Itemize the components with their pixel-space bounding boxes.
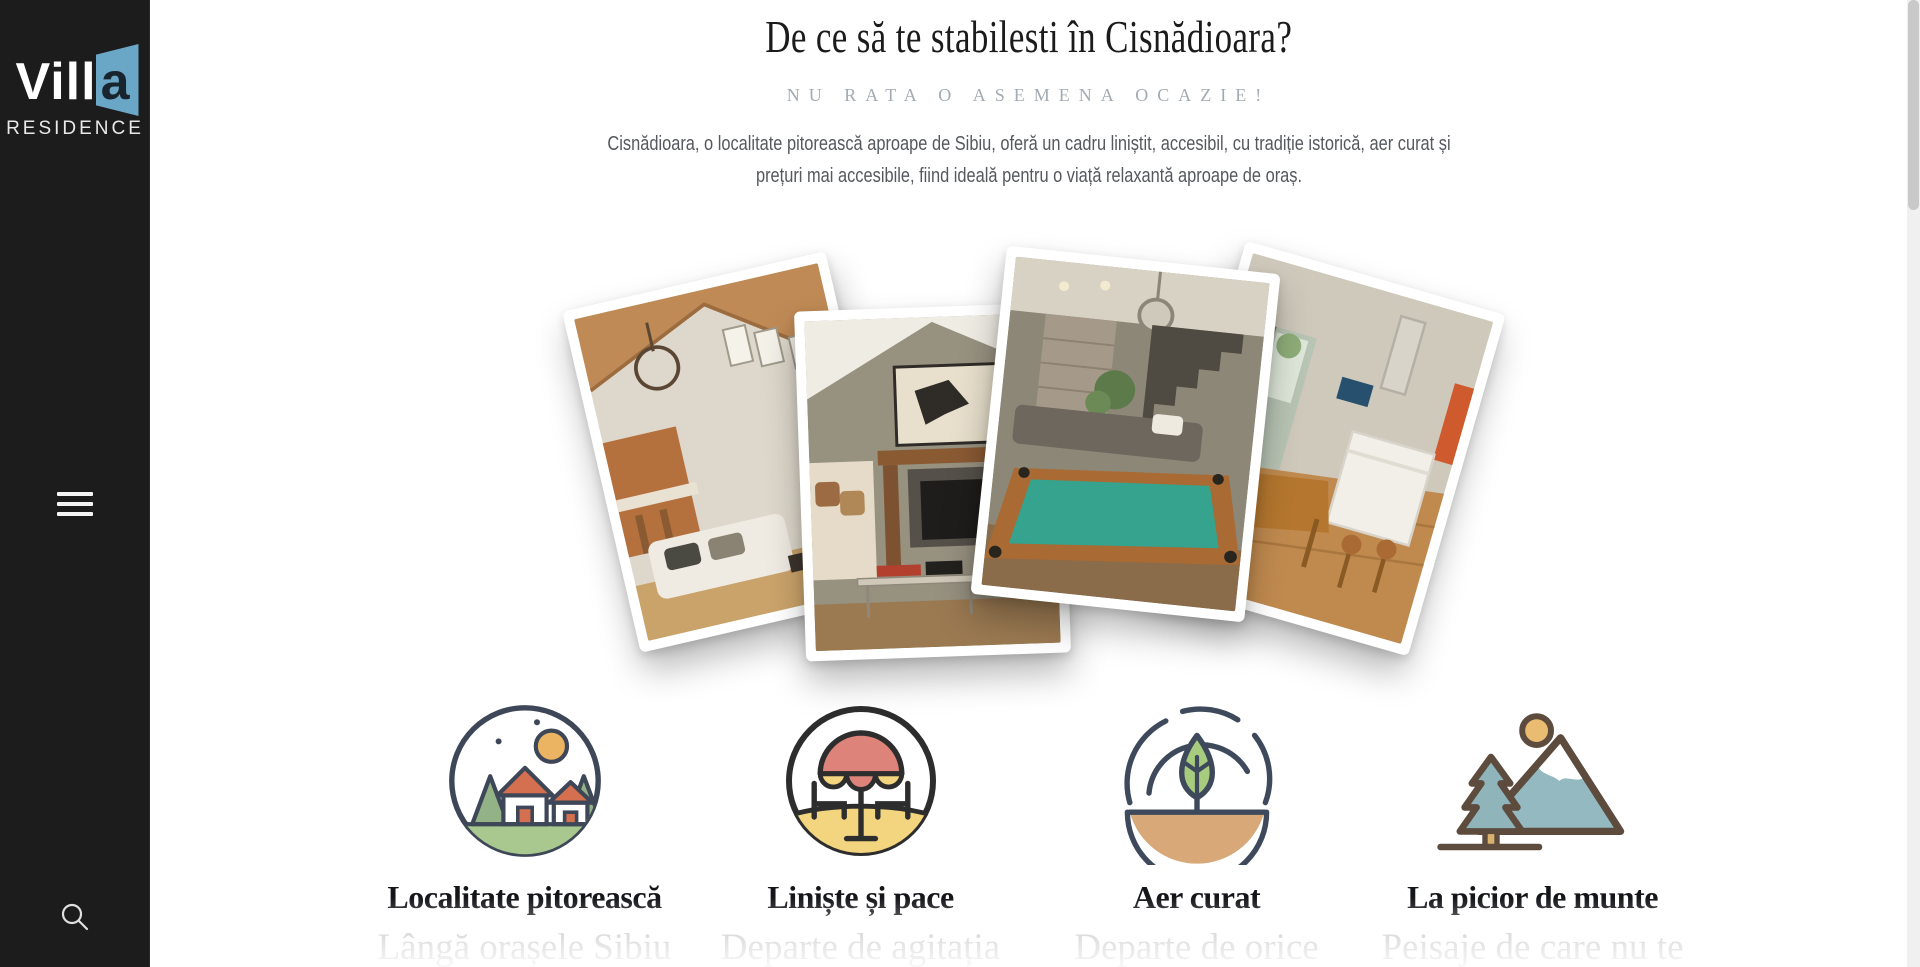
search-icon[interactable] <box>58 900 92 937</box>
scrollbar-thumb[interactable] <box>1908 0 1919 210</box>
features-row: Localitate pitorească Lângă orașele Sibi… <box>150 697 1907 967</box>
logo-text: Vill <box>15 53 96 111</box>
feature-title: Aer curat <box>1042 879 1352 916</box>
feature-title: La picior de munte <box>1378 879 1688 916</box>
village-icon <box>370 697 680 865</box>
hamburger-menu-icon[interactable] <box>53 490 97 518</box>
villa-residence-logo[interactable]: Villa RESIDENCE <box>0 56 150 140</box>
scrollbar-track[interactable] <box>1907 0 1920 967</box>
feature-aer-curat: Aer curat Departe de orice surse de polu… <box>1042 697 1352 967</box>
feature-subtitle: Departe de agitația din oraș <box>706 924 1016 967</box>
mountains-icon <box>1378 697 1688 865</box>
page-title: De ce să te stabilesti în Cisnădioara? <box>150 10 1907 63</box>
feature-subtitle: Lângă orașele Sibiu și Cisnădie <box>370 924 680 967</box>
sidebar: Villa RESIDENCE <box>0 0 150 967</box>
feature-liniste-si-pace: Liniște și pace Departe de agitația din … <box>706 697 1016 967</box>
logo-wordmark: Villa <box>15 56 134 108</box>
feature-la-picior-de-munte: La picior de munte Peisaje de care nu te… <box>1378 697 1688 967</box>
feature-title: Liniște și pace <box>706 879 1016 916</box>
hero-description: Cisnădioara, o localitate pitorească apr… <box>582 128 1476 193</box>
tree-air-icon <box>1042 697 1352 865</box>
feature-title: Localitate pitorească <box>370 879 680 916</box>
photo-collage <box>150 255 1907 655</box>
logo-subtext: RESIDENCE <box>0 118 150 140</box>
hero-tagline: NU RATA O ASEMENA OCAZIE! <box>150 85 1907 106</box>
photo-game-room-pool-table <box>970 245 1280 622</box>
main-content: De ce să te stabilesti în Cisnădioara? N… <box>150 0 1907 967</box>
feature-subtitle: Peisaje de care nu te vei plictisi <box>1378 924 1688 967</box>
feature-localitate-pitoreasca: Localitate pitorească Lângă orașele Sibi… <box>370 697 680 967</box>
logo-accent-letter: a <box>97 56 135 108</box>
feature-subtitle: Departe de orice surse de poluare <box>1042 924 1352 967</box>
terrace-icon <box>706 697 1016 865</box>
